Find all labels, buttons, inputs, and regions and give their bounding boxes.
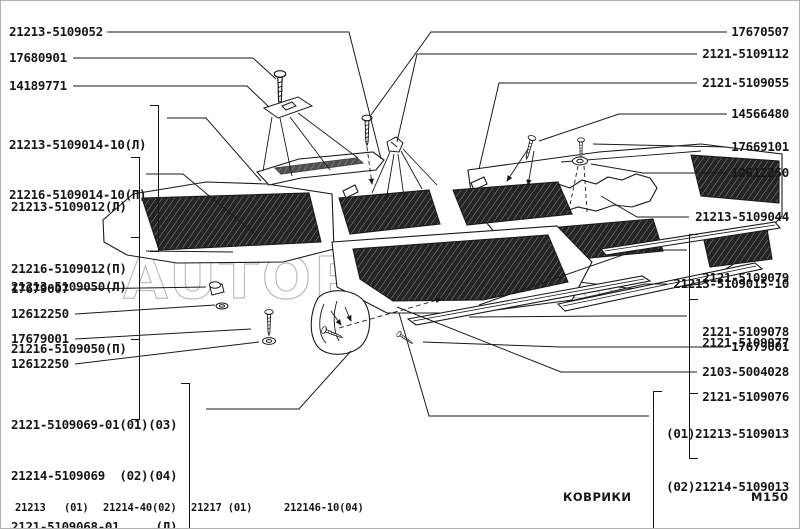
carpet-right-hatch-low: [548, 219, 663, 261]
part-number-label: 14189771: [9, 78, 67, 94]
part-number-label: 21213-5109044: [695, 209, 789, 225]
insulation-mat: [544, 174, 657, 213]
model-code: 21213 (01): [15, 502, 88, 514]
part-label-group: (01)21213-5109013 (02)21214-5109013 (П) …: [666, 390, 789, 529]
group-bracket: [653, 391, 662, 529]
catalog-page: AUTOPITER.RU: [0, 0, 800, 529]
mudflap: [311, 291, 369, 355]
part-number-label: (01)21213-5109013: [666, 425, 789, 443]
group-bracket: [181, 383, 190, 529]
sheet-code: М150: [751, 490, 788, 504]
model-code: 21214-40(02): [103, 502, 176, 514]
clip-icon: [387, 137, 403, 152]
screw-icon: [362, 115, 372, 145]
part-number-label: 17670507: [731, 24, 789, 40]
sill-strip-3: [408, 276, 650, 325]
washer-icon: [216, 303, 228, 309]
part-number-label: 17679001: [731, 339, 789, 355]
part-number-label: 12612250: [11, 306, 69, 322]
part-number-label: 21213-5109052: [9, 24, 103, 40]
part-number-label: 21213-5109014-10(Л): [9, 137, 146, 154]
model-legend-column: 212146-10(04) 212146-40(04): [284, 478, 364, 529]
tunnel-cover-strip: [257, 152, 384, 185]
plug-icon: [210, 284, 224, 295]
part-number-label: 14566480: [731, 106, 789, 122]
screw-icon: [265, 310, 274, 336]
model-code: 21217 (01): [191, 502, 264, 514]
part-number-label: 12612250: [731, 165, 789, 181]
retainer-plate: [264, 97, 312, 118]
screw-icon: [522, 135, 536, 161]
fasteners: [210, 71, 588, 346]
rivet-icon: [396, 331, 414, 346]
part-number-label: 2121-5109069-01(01)(03): [11, 416, 177, 433]
model-code: 212146-10(04): [284, 502, 364, 514]
part-number-label: 17679007: [11, 281, 69, 297]
model-legend-column: 21213 (01) 21214 (02) 21214-10(02): [15, 478, 88, 529]
floor-mat-front: [332, 226, 592, 313]
screw-icon: [274, 71, 286, 106]
carpet-shapes: [103, 144, 782, 354]
floor-mat-left-hatch: [142, 193, 321, 250]
part-number-label: 17679001: [11, 331, 69, 347]
watermark-text: AUTOPITER.RU: [123, 244, 641, 312]
model-legend-column: 21217 (01) 212146(04) 21215-10(02): [191, 478, 264, 529]
part-number-label: 21213-5109012(Л): [11, 197, 127, 218]
washer-icon: [263, 338, 276, 345]
part-number-label: 21213-5109015-10: [673, 276, 789, 292]
rear-mat-right-hatch: [453, 182, 572, 225]
screw-icon: [577, 138, 584, 160]
part-number-label: 17669101: [731, 139, 789, 155]
part-number-label: 2121-5109055: [702, 75, 789, 91]
screw-icon: [321, 326, 344, 341]
part-number-label: 2121-5109112: [702, 46, 789, 62]
part-number-label: 17680901: [9, 50, 67, 66]
washer-icon: [573, 157, 588, 165]
page-title: КОВРИКИ: [563, 490, 632, 504]
rear-mat-left-hatch: [339, 190, 440, 234]
floor-mat-front-hatch: [353, 235, 568, 301]
part-number-label: 12612250: [11, 356, 69, 372]
leader-lines: [73, 32, 727, 416]
group-bracket: [150, 105, 159, 252]
model-legend-column: 21214-40(02) 21215 (01) 21216 (03): [103, 478, 176, 529]
assembly-lines: [263, 113, 587, 328]
part-number-label: 2103-5004028: [702, 364, 789, 380]
